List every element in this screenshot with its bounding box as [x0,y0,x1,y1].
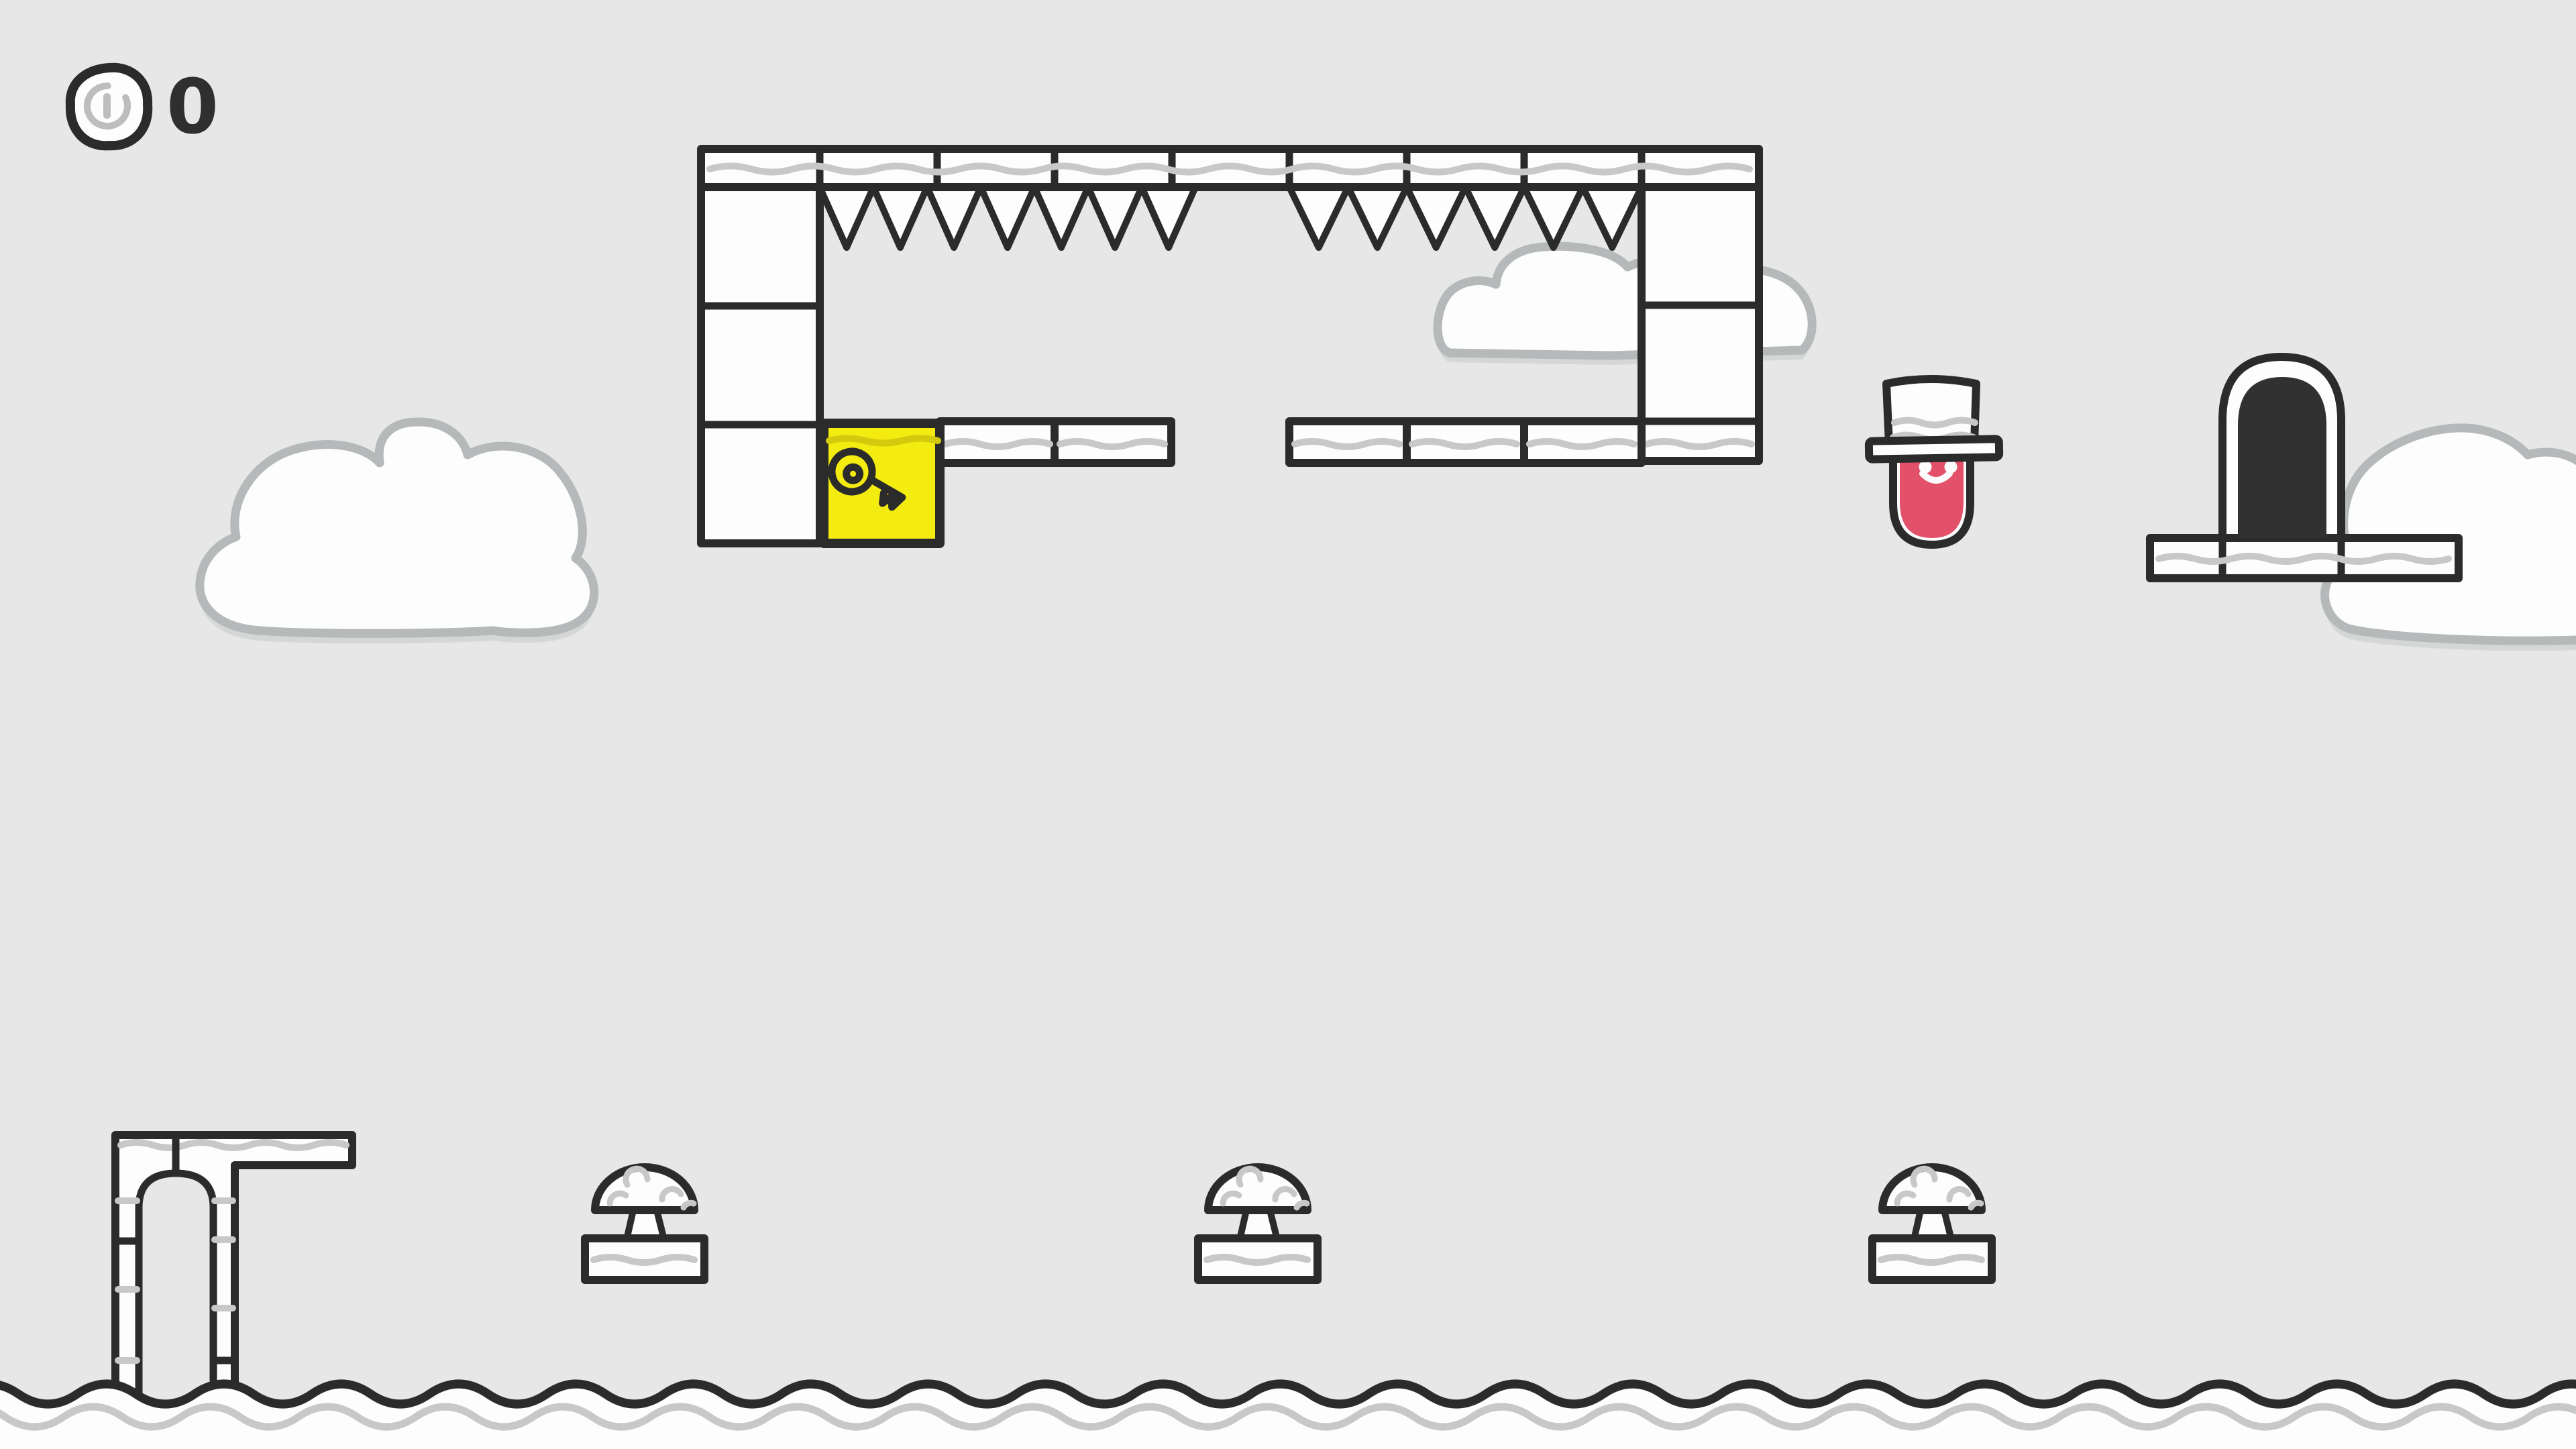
door-platform [2150,538,2459,578]
exit-door[interactable] [2222,357,2341,538]
sky-background [0,0,2576,1449]
arch-opening [139,1173,213,1417]
coin-icon [70,68,148,146]
key-block[interactable] [824,423,940,543]
coin-count-text: 0 [166,64,219,151]
top-hat-brim [1869,439,1999,459]
coin-slot-mark [103,93,111,119]
platform-row [940,421,1642,463]
door-opening[interactable] [2238,377,2326,538]
game-viewport: 0 [0,0,2576,1449]
left-wall [701,187,820,543]
